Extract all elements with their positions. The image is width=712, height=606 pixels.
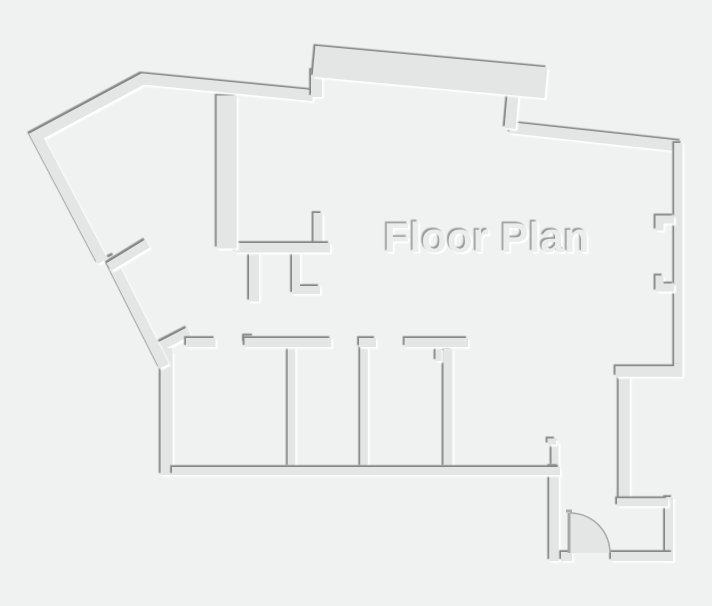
svg-text:Floor Plan: Floor Plan: [384, 214, 589, 261]
